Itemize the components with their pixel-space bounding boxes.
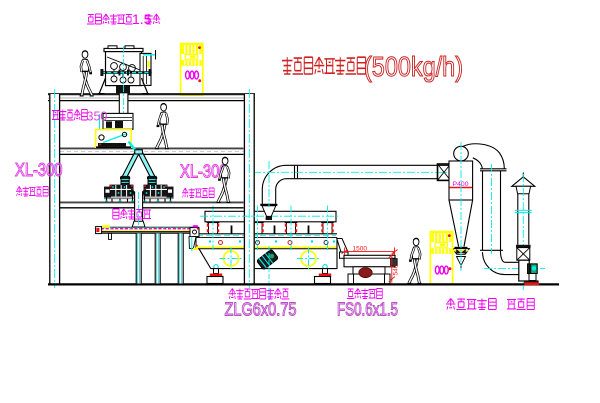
svg-text:350: 350 xyxy=(87,110,108,124)
svg-text:XL-300: XL-300 xyxy=(15,160,63,180)
svg-text:1.5: 1.5 xyxy=(132,11,152,27)
svg-text:ZLG6x0.75: ZLG6x0.75 xyxy=(225,299,297,320)
svg-text:(500kg/h): (500kg/h) xyxy=(364,51,463,82)
svg-text:FS0.6x1.5: FS0.6x1.5 xyxy=(337,299,398,320)
svg-text:1500: 1500 xyxy=(353,246,368,253)
svg-text:540: 540 xyxy=(393,264,400,275)
